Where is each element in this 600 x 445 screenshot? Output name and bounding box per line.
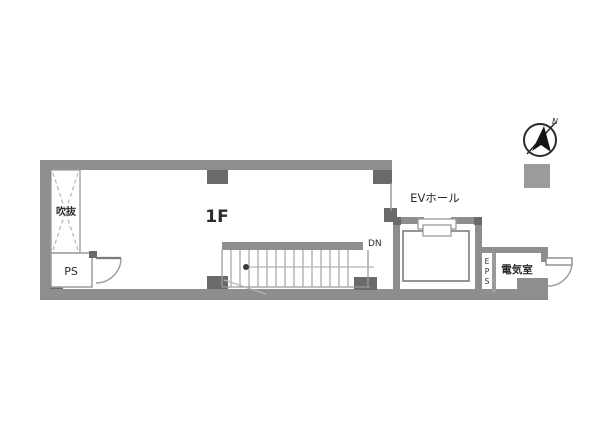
eps-wall-right: [492, 247, 496, 293]
door-swing-arc: [96, 258, 121, 283]
pillars: [50, 170, 397, 290]
eps-letter-s: S: [485, 277, 490, 286]
stair-walk-line-start-dot: [243, 264, 249, 270]
compass-icon: N: [524, 117, 558, 156]
wall-left: [40, 160, 51, 300]
wall-bottom: [40, 289, 548, 300]
pillar-top-middle: [207, 170, 228, 184]
pillar-top-right: [373, 170, 392, 184]
wall-top: [40, 160, 392, 170]
elevator-corner-left: [393, 217, 401, 225]
elevator-shaft: [393, 217, 482, 295]
elevator-corner-right: [474, 217, 482, 225]
legend-square: [524, 164, 550, 188]
floor-plan-page: 吹抜 PS 1F: [0, 0, 600, 445]
ev-hall: EVホール: [391, 183, 460, 211]
eps-letter-p: P: [485, 267, 490, 276]
eps-letter-e: E: [485, 257, 490, 266]
floor-label: 1F: [205, 207, 228, 227]
electrical-door-leaf: [546, 258, 572, 265]
door-hinge-block: [89, 251, 97, 258]
electrical-room: 電気室: [493, 247, 572, 295]
ps-label: PS: [64, 265, 78, 278]
void-label: 吹抜: [56, 205, 77, 218]
electrical-corner-block: [517, 278, 548, 295]
north-label: N: [552, 117, 558, 126]
dn-label: DN: [368, 239, 382, 249]
elevator-wall-left: [393, 217, 400, 295]
elevator-car-door: [423, 225, 451, 236]
elevator-car: [403, 231, 469, 281]
elevator-wall-right: [475, 217, 482, 295]
void-shaft: 吹抜: [51, 170, 80, 253]
pillar-stair-corner: [354, 277, 377, 290]
entrance-door: [89, 251, 121, 283]
stair-top-wall: [222, 242, 363, 250]
electrical-wall-top: [493, 247, 548, 253]
ps-room: PS: [51, 253, 92, 287]
electrical-room-label: 電気室: [501, 263, 533, 276]
floor-plan-drawing: 吹抜 PS 1F: [0, 0, 600, 445]
ev-hall-label: EVホール: [410, 191, 460, 205]
